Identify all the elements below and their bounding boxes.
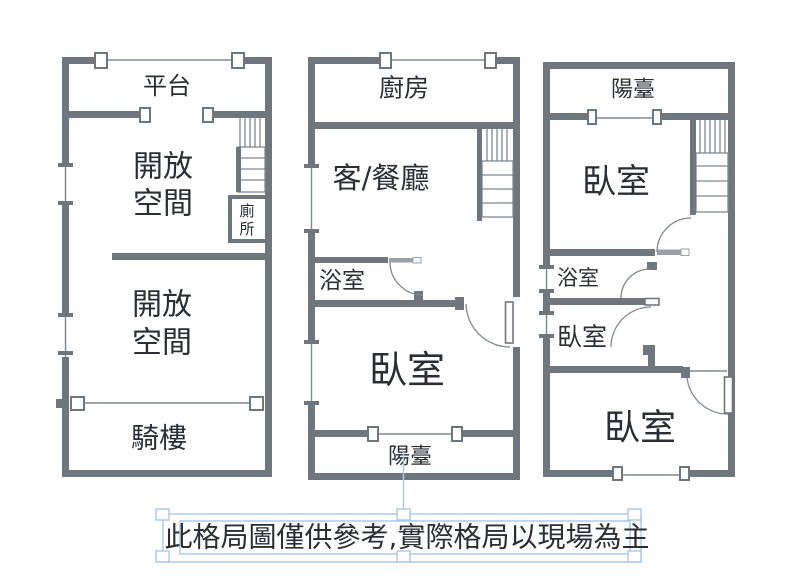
floor3-bedroom-top-door — [657, 218, 691, 256]
floor2-balcony-railing — [368, 427, 462, 441]
room-label-bathroom-right: 浴室 — [557, 266, 599, 290]
room-label-balcony-right: 陽臺 — [611, 78, 655, 103]
floor2-left-window-2 — [304, 340, 319, 405]
floor2-left-window-1 — [304, 164, 319, 233]
room-label-bedroom-middle-plan: 臥室 — [369, 348, 445, 392]
floor3-bottom-window — [613, 467, 689, 480]
room-label-kitchen: 廚房 — [379, 74, 429, 103]
room-label-toilet-line2: 所 — [239, 220, 254, 238]
floor3-stairs-icon — [690, 120, 728, 215]
room-label-platform: 平台 — [143, 72, 191, 100]
disclaimer-text: 此格局圖僅供參考,實際格局以現場為主 — [165, 521, 650, 554]
room-label-arcade: 騎樓 — [131, 422, 187, 455]
floor3-left-window-2 — [539, 311, 554, 338]
floor2-top-window — [380, 53, 496, 68]
floor-plan-left: 廁 所 平台 開放 空間 開放 空間 騎樓 — [56, 53, 272, 477]
selection-handle-top-right[interactable] — [628, 509, 641, 520]
room-label-toilet-line1: 廁 — [239, 202, 254, 220]
floor1-top-window — [95, 53, 244, 68]
room-label-open-space-1-line1: 開放 — [133, 150, 193, 185]
floor1-storefront-line — [56, 397, 263, 410]
selection-handle-top-middle[interactable] — [397, 509, 410, 520]
floor2-stairs-icon — [477, 129, 513, 221]
floor3-bedroom-bottom-door — [687, 371, 733, 414]
room-label-bedroom-bottom: 臥室 — [604, 408, 676, 449]
room-label-bedroom-top: 臥室 — [582, 162, 650, 202]
floor2-bathroom-door — [389, 258, 423, 296]
room-label-bedroom-middle-right: 臥室 — [557, 323, 607, 352]
floor1-left-window-2 — [58, 313, 73, 357]
floor2-bedroom-door — [466, 302, 513, 347]
floor3-bedroom-middle-door — [611, 307, 651, 347]
room-label-open-space-2-line2: 空間 — [132, 326, 192, 361]
floor3-balcony-railing — [588, 110, 661, 124]
room-label-open-space-1-line2: 空間 — [133, 187, 193, 222]
floor1-toilet-room: 廁 所 — [228, 195, 265, 243]
floor1-divider-posts — [140, 108, 213, 122]
room-label-living-dining: 客/餐廳 — [333, 161, 430, 195]
floor-plan-middle: 廚房 客/餐廳 浴室 臥室 陽臺 — [304, 53, 520, 480]
floor-plan-page: 廁 所 平台 開放 空間 開放 空間 騎樓 — [0, 0, 800, 576]
selection-handle-top-left[interactable] — [156, 509, 169, 520]
floor-plan-drawing: 廁 所 平台 開放 空間 開放 空間 騎樓 — [0, 0, 800, 576]
floor1-stairs-icon — [236, 118, 265, 192]
room-label-open-space-2-line1: 開放 — [132, 288, 192, 323]
floor3-left-window-1 — [539, 265, 554, 293]
room-label-bathroom-middle: 浴室 — [319, 268, 365, 294]
floor1-left-window-1 — [58, 163, 73, 205]
floor-plan-right: 陽臺 臥室 浴室 臥室 臥室 — [539, 62, 735, 480]
room-label-balcony-middle: 陽臺 — [388, 445, 432, 470]
